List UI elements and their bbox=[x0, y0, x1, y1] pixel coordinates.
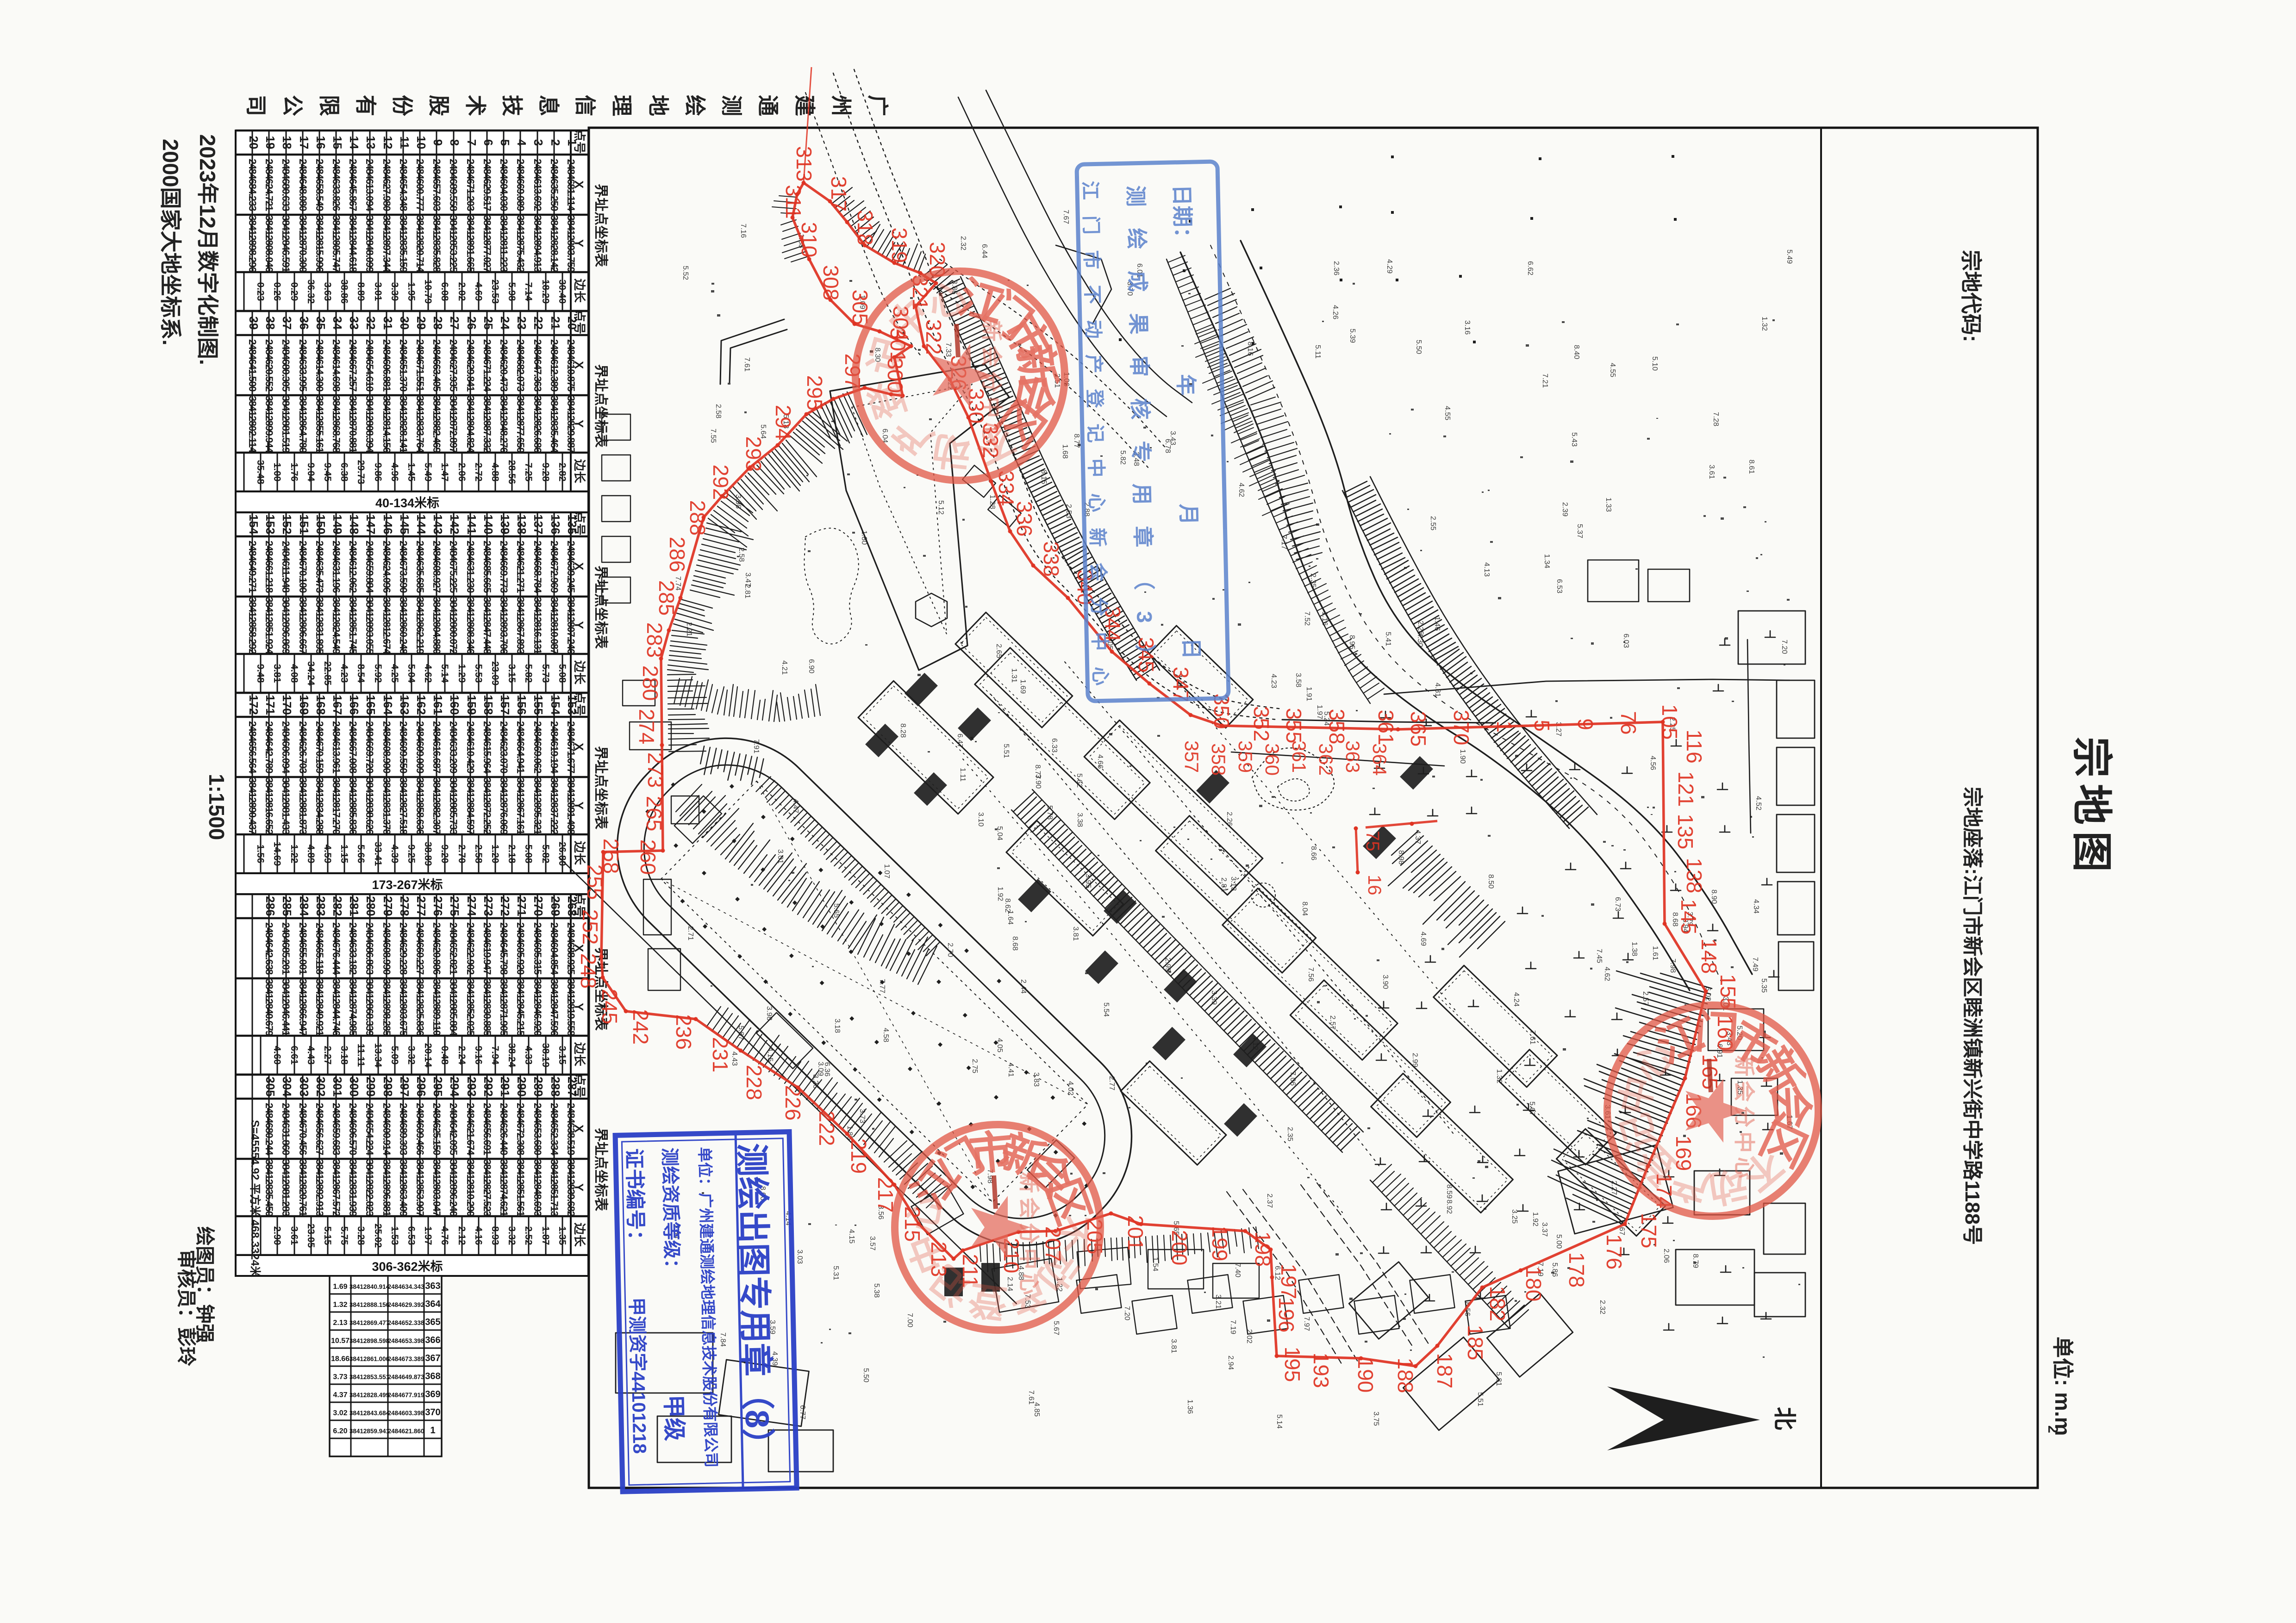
svg-text:1.46: 1.46 bbox=[1433, 616, 1441, 631]
svg-text:4.88: 4.88 bbox=[490, 463, 500, 482]
svg-text:38412829.887: 38412829.887 bbox=[565, 396, 577, 453]
svg-text:2484624.096: 2484624.096 bbox=[381, 541, 393, 593]
svg-text:心: 心 bbox=[980, 422, 1004, 443]
svg-text:279: 279 bbox=[381, 896, 395, 916]
svg-text:285: 285 bbox=[655, 580, 679, 616]
svg-text:2484629.392: 2484629.392 bbox=[388, 1301, 424, 1308]
svg-text:38412868.768: 38412868.768 bbox=[331, 396, 342, 453]
svg-text:38412814.156: 38412814.156 bbox=[381, 396, 393, 453]
svg-text:38412898.296: 38412898.296 bbox=[247, 215, 258, 273]
svg-text:8.79: 8.79 bbox=[1691, 1254, 1699, 1268]
svg-text:2484677.919: 2484677.919 bbox=[388, 1392, 424, 1399]
svg-text:4.02: 4.02 bbox=[1067, 1081, 1074, 1095]
svg-text:38412806.667: 38412806.667 bbox=[297, 597, 309, 654]
svg-text:2484657.603: 2484657.603 bbox=[431, 159, 443, 211]
svg-text:测: 测 bbox=[719, 95, 743, 116]
svg-text:2484656.564: 2484656.564 bbox=[247, 721, 258, 774]
svg-text:38412819.558: 38412819.558 bbox=[565, 979, 577, 1036]
svg-text:2484635.250: 2484635.250 bbox=[549, 159, 560, 211]
svg-text:5.39: 5.39 bbox=[1348, 329, 1356, 343]
svg-text:13.34: 13.34 bbox=[373, 1043, 383, 1068]
svg-text:172: 172 bbox=[247, 695, 261, 715]
svg-text:2484612.389: 2484612.389 bbox=[549, 339, 560, 392]
svg-text:2484645.867: 2484645.867 bbox=[347, 159, 359, 211]
svg-text:11.11: 11.11 bbox=[356, 1044, 366, 1067]
svg-text:7.06: 7.06 bbox=[1289, 1071, 1297, 1086]
svg-text:38412846.591: 38412846.591 bbox=[280, 215, 292, 273]
svg-text:6.38: 6.38 bbox=[339, 463, 349, 482]
svg-text:0.48: 0.48 bbox=[439, 1046, 450, 1065]
svg-text:38.89: 38.89 bbox=[423, 842, 433, 866]
svg-text:9: 9 bbox=[431, 139, 445, 146]
svg-text:2484653.398: 2484653.398 bbox=[388, 1337, 424, 1344]
svg-text:300: 300 bbox=[347, 1076, 361, 1096]
svg-text:2.99: 2.99 bbox=[1164, 958, 1172, 972]
svg-text:38412835.464: 38412835.464 bbox=[549, 396, 560, 454]
svg-text:1.56: 1.56 bbox=[255, 845, 266, 864]
svg-text:1.22: 1.22 bbox=[289, 845, 299, 864]
svg-text:2484669.720: 2484669.720 bbox=[364, 721, 375, 773]
svg-text:197: 197 bbox=[1277, 1264, 1301, 1300]
svg-text:180: 180 bbox=[1522, 1266, 1546, 1302]
svg-text:3.15: 3.15 bbox=[557, 1046, 568, 1065]
svg-text:5.50: 5.50 bbox=[862, 1368, 870, 1382]
svg-text:38412847.448: 38412847.448 bbox=[481, 597, 493, 654]
svg-text:5.31: 5.31 bbox=[832, 1266, 840, 1280]
svg-text:2484664.941: 2484664.941 bbox=[515, 721, 526, 773]
svg-text:4.12: 4.12 bbox=[1251, 1036, 1259, 1050]
svg-text:2484676.444: 2484676.444 bbox=[331, 922, 342, 975]
svg-text:38412828.499: 38412828.499 bbox=[349, 1392, 389, 1399]
svg-text:测绘出图专用章（8）: 测绘出图专用章（8） bbox=[732, 1143, 776, 1462]
svg-text:38412866.947: 38412866.947 bbox=[297, 979, 309, 1036]
svg-text:5: 5 bbox=[1530, 720, 1554, 732]
svg-text:38412870.881: 38412870.881 bbox=[347, 396, 359, 453]
svg-text:365: 365 bbox=[1406, 711, 1430, 747]
svg-text:术: 术 bbox=[463, 95, 487, 116]
svg-text:2484642.638: 2484642.638 bbox=[263, 922, 275, 975]
svg-text:8.54: 8.54 bbox=[356, 664, 366, 683]
svg-text:7.56: 7.56 bbox=[1307, 967, 1315, 982]
svg-text:5.78: 5.78 bbox=[1046, 805, 1054, 820]
svg-text:2484656.691: 2484656.691 bbox=[481, 1103, 493, 1155]
svg-text:280: 280 bbox=[364, 896, 378, 916]
svg-text:305: 305 bbox=[263, 1076, 277, 1096]
svg-text:边长: 边长 bbox=[573, 1223, 586, 1247]
svg-text:1.76: 1.76 bbox=[289, 463, 299, 482]
svg-text:7.94: 7.94 bbox=[490, 1046, 500, 1065]
svg-text:界址点坐标表: 界址点坐标表 bbox=[593, 1128, 608, 1211]
svg-text:2.18: 2.18 bbox=[506, 845, 517, 864]
svg-text:5.41: 5.41 bbox=[1384, 632, 1392, 646]
svg-text:21: 21 bbox=[549, 317, 562, 330]
svg-text:299: 299 bbox=[364, 1076, 378, 1096]
svg-text:2023年12月数字化制图.: 2023年12月数字化制图. bbox=[195, 134, 220, 365]
svg-text:1.00: 1.00 bbox=[272, 463, 282, 482]
svg-text:2.53: 2.53 bbox=[1065, 504, 1073, 518]
svg-text:137: 137 bbox=[531, 514, 545, 534]
svg-text:4.25: 4.25 bbox=[389, 664, 400, 683]
svg-text:4.23: 4.23 bbox=[1270, 674, 1278, 688]
svg-text:限: 限 bbox=[317, 95, 341, 116]
svg-text:0.23: 0.23 bbox=[255, 282, 266, 301]
svg-text:38412853.225: 38412853.225 bbox=[448, 215, 459, 273]
svg-text:160: 160 bbox=[448, 695, 462, 715]
svg-text:38412838.626: 38412838.626 bbox=[364, 777, 375, 835]
svg-text:2484629.228: 2484629.228 bbox=[398, 922, 409, 975]
svg-text:2484606.094: 2484606.094 bbox=[280, 721, 292, 774]
svg-text:边长: 边长 bbox=[573, 459, 586, 484]
svg-text:11: 11 bbox=[398, 136, 412, 149]
svg-text:4.41: 4.41 bbox=[1007, 1063, 1015, 1077]
svg-text:10.79: 10.79 bbox=[423, 280, 433, 304]
svg-text:38412877.027: 38412877.027 bbox=[481, 215, 493, 273]
svg-text:5: 5 bbox=[498, 139, 512, 146]
svg-text:38412831.939: 38412831.939 bbox=[347, 1159, 359, 1217]
svg-text:3.75: 3.75 bbox=[1372, 1412, 1380, 1426]
svg-text:2484685.201: 2484685.201 bbox=[280, 922, 292, 975]
svg-text:2484608.900: 2484608.900 bbox=[381, 721, 393, 773]
svg-text:9.04: 9.04 bbox=[306, 463, 316, 482]
svg-text:236: 236 bbox=[672, 1014, 696, 1050]
svg-text:188: 188 bbox=[1393, 1358, 1417, 1393]
svg-text:38412885.836: 38412885.836 bbox=[347, 777, 359, 835]
svg-text:2484654.610: 2484654.610 bbox=[364, 339, 375, 392]
svg-text:2484623.070: 2484623.070 bbox=[498, 721, 510, 773]
svg-text:13: 13 bbox=[364, 136, 378, 149]
svg-text:38412803.759: 38412803.759 bbox=[565, 215, 577, 273]
svg-text:1.35: 1.35 bbox=[557, 1226, 568, 1245]
svg-text:绘: 绘 bbox=[683, 95, 707, 116]
svg-text:3.61: 3.61 bbox=[1708, 465, 1716, 479]
svg-text:306-362米标: 306-362米标 bbox=[372, 1260, 443, 1274]
svg-text:6: 6 bbox=[481, 139, 495, 146]
svg-text:5.15: 5.15 bbox=[322, 1226, 333, 1245]
svg-text:2484647.363: 2484647.363 bbox=[532, 339, 543, 392]
svg-text:38412840.914: 38412840.914 bbox=[349, 1283, 390, 1290]
svg-text:170: 170 bbox=[280, 695, 294, 715]
svg-text:38412884.597: 38412884.597 bbox=[465, 777, 476, 835]
svg-text:23.09: 23.09 bbox=[490, 661, 500, 686]
svg-text:38412891.665: 38412891.665 bbox=[465, 215, 476, 273]
svg-text:3.98: 3.98 bbox=[765, 1006, 773, 1020]
svg-text:2484638.519: 2484638.519 bbox=[565, 1103, 577, 1155]
svg-text:4.43: 4.43 bbox=[306, 1046, 316, 1065]
svg-text:2484659.683: 2484659.683 bbox=[331, 1103, 342, 1155]
svg-text:新: 新 bbox=[980, 320, 1004, 342]
svg-text:6.62: 6.62 bbox=[1526, 261, 1534, 275]
svg-text:38412805.747: 38412805.747 bbox=[331, 215, 342, 273]
svg-text:258: 258 bbox=[599, 839, 623, 874]
svg-text:2.39: 2.39 bbox=[1561, 502, 1569, 516]
svg-text:4.60: 4.60 bbox=[272, 1046, 282, 1065]
svg-text:31: 31 bbox=[381, 317, 395, 330]
svg-text:26: 26 bbox=[465, 317, 479, 330]
svg-text:157: 157 bbox=[498, 695, 512, 715]
svg-text:4.89: 4.89 bbox=[306, 845, 316, 864]
svg-text:5.04: 5.04 bbox=[996, 826, 1004, 840]
svg-text:20: 20 bbox=[247, 136, 261, 149]
svg-text:4.96: 4.96 bbox=[389, 463, 400, 482]
svg-text:2484665.118: 2484665.118 bbox=[314, 923, 325, 975]
svg-text:2484634.343: 2484634.343 bbox=[388, 1283, 424, 1290]
svg-text:158: 158 bbox=[481, 695, 495, 715]
svg-text:2000国家大地坐标系.: 2000国家大地坐标系. bbox=[158, 139, 183, 346]
svg-text:9.28: 9.28 bbox=[540, 463, 551, 482]
svg-text:33: 33 bbox=[347, 317, 361, 330]
svg-text:2484645.798: 2484645.798 bbox=[498, 922, 510, 975]
svg-text:358: 358 bbox=[1325, 709, 1349, 745]
svg-text:2.06: 2.06 bbox=[1662, 1249, 1670, 1263]
svg-text:38412834.288: 38412834.288 bbox=[314, 777, 325, 835]
svg-text:5.67: 5.67 bbox=[1052, 1321, 1060, 1335]
svg-text:新: 新 bbox=[1732, 1055, 1756, 1076]
svg-text:281: 281 bbox=[347, 896, 361, 916]
svg-text:286: 286 bbox=[263, 896, 277, 916]
svg-text:2484681.114: 2484681.114 bbox=[565, 159, 577, 211]
svg-text:2484633.182: 2484633.182 bbox=[347, 922, 359, 975]
svg-text:3.32: 3.32 bbox=[506, 1226, 517, 1245]
svg-text:38412826.686: 38412826.686 bbox=[532, 396, 543, 453]
svg-text:38412845.215: 38412845.215 bbox=[515, 979, 526, 1036]
svg-text:3.16: 3.16 bbox=[1463, 320, 1471, 335]
svg-text:274: 274 bbox=[635, 709, 659, 745]
svg-text:121: 121 bbox=[1674, 771, 1698, 807]
svg-text:288: 288 bbox=[686, 500, 710, 536]
svg-text:2484631.230: 2484631.230 bbox=[465, 541, 476, 593]
svg-text:州: 州 bbox=[829, 95, 853, 116]
svg-text:4.16: 4.16 bbox=[473, 1226, 484, 1245]
svg-text:2484629.517: 2484629.517 bbox=[481, 159, 493, 211]
svg-text:5.08: 5.08 bbox=[523, 845, 534, 864]
svg-text:1.97: 1.97 bbox=[423, 1226, 433, 1245]
svg-text:边长: 边长 bbox=[573, 841, 586, 865]
svg-text:2.13: 2.13 bbox=[333, 1319, 347, 1327]
svg-text:38: 38 bbox=[263, 317, 277, 330]
svg-text:38412811.223: 38412811.223 bbox=[498, 215, 510, 272]
svg-text:4.15: 4.15 bbox=[848, 1229, 855, 1244]
svg-text:7.21: 7.21 bbox=[1541, 373, 1549, 388]
svg-text:22.85: 22.85 bbox=[322, 661, 333, 686]
svg-text:9.16: 9.16 bbox=[473, 1046, 484, 1065]
svg-text:38412852.025: 38412852.025 bbox=[465, 979, 476, 1036]
svg-text:1.69: 1.69 bbox=[1019, 679, 1027, 694]
svg-text:9.25: 9.25 bbox=[406, 845, 417, 864]
svg-text:317: 317 bbox=[827, 176, 851, 212]
svg-text:34.24: 34.24 bbox=[306, 661, 316, 686]
svg-text:75: 75 bbox=[1362, 831, 1383, 852]
svg-text:8.50: 8.50 bbox=[1487, 874, 1495, 889]
svg-text:149: 149 bbox=[331, 514, 344, 534]
svg-text:38412851.924: 38412851.924 bbox=[263, 597, 275, 655]
svg-text:171: 171 bbox=[263, 695, 277, 715]
svg-text:4.21: 4.21 bbox=[780, 660, 788, 675]
svg-text:5.86: 5.86 bbox=[1551, 1262, 1559, 1277]
svg-text:38412897.344: 38412897.344 bbox=[381, 215, 393, 273]
svg-text:292: 292 bbox=[481, 1076, 495, 1096]
svg-text:5.11: 5.11 bbox=[1314, 345, 1322, 359]
svg-text:测绘资质等级：: 测绘资质等级： bbox=[659, 1147, 682, 1277]
svg-text:338: 338 bbox=[1039, 541, 1063, 577]
svg-text:153: 153 bbox=[565, 695, 579, 715]
svg-text:38412816.652: 38412816.652 bbox=[263, 777, 275, 835]
svg-text:289: 289 bbox=[531, 1076, 545, 1096]
svg-text:35: 35 bbox=[314, 317, 328, 330]
svg-text:76: 76 bbox=[1616, 711, 1641, 734]
svg-text:357: 357 bbox=[1181, 740, 1203, 773]
svg-text:4.26: 4.26 bbox=[1331, 305, 1339, 319]
svg-text:38412853.551: 38412853.551 bbox=[349, 1374, 390, 1380]
svg-text:2484649.271: 2484649.271 bbox=[247, 541, 258, 593]
svg-text:8.68: 8.68 bbox=[1011, 936, 1019, 951]
svg-text:38412898.285: 38412898.285 bbox=[381, 979, 393, 1036]
svg-text:2484619.194: 2484619.194 bbox=[549, 721, 560, 774]
svg-text:心: 心 bbox=[1017, 1274, 1041, 1295]
svg-text:3.18: 3.18 bbox=[833, 1019, 841, 1033]
svg-text:7.16: 7.16 bbox=[739, 224, 747, 238]
svg-text:2484686.863: 2484686.863 bbox=[364, 922, 375, 975]
svg-text:140: 140 bbox=[481, 514, 495, 534]
svg-text:2484635.473: 2484635.473 bbox=[314, 541, 325, 593]
svg-text:1.45: 1.45 bbox=[406, 463, 417, 482]
svg-text:4.66: 4.66 bbox=[1096, 754, 1104, 769]
svg-text:4.29: 4.29 bbox=[1385, 259, 1393, 274]
svg-text:8.95: 8.95 bbox=[1348, 635, 1356, 649]
svg-text:4.23: 4.23 bbox=[339, 664, 349, 683]
svg-text:2484620.473: 2484620.473 bbox=[498, 339, 510, 392]
svg-text:38412847.596: 38412847.596 bbox=[549, 979, 560, 1036]
svg-text:138: 138 bbox=[1682, 858, 1706, 894]
svg-text:295: 295 bbox=[431, 1076, 445, 1096]
svg-text:38412828.142: 38412828.142 bbox=[549, 215, 560, 273]
svg-text:38412893.055: 38412893.055 bbox=[364, 597, 375, 654]
svg-text:2484658.549: 2484658.549 bbox=[314, 159, 325, 211]
svg-text:319: 319 bbox=[887, 228, 911, 263]
svg-text:136: 136 bbox=[549, 514, 562, 534]
svg-text:5.38: 5.38 bbox=[873, 1283, 880, 1298]
svg-text:3.58: 3.58 bbox=[1294, 673, 1302, 687]
svg-text:199: 199 bbox=[1208, 1226, 1232, 1262]
svg-text:290: 290 bbox=[515, 1076, 529, 1096]
svg-text:155: 155 bbox=[531, 695, 545, 715]
svg-text:38412885.884: 38412885.884 bbox=[448, 979, 459, 1037]
svg-text:4.62: 4.62 bbox=[423, 664, 433, 683]
svg-text:193: 193 bbox=[1309, 1353, 1333, 1388]
svg-text:38412820.761: 38412820.761 bbox=[297, 1159, 309, 1217]
svg-text:269: 269 bbox=[549, 896, 562, 916]
svg-text:6.73: 6.73 bbox=[1614, 897, 1622, 911]
svg-text:38412895.321: 38412895.321 bbox=[532, 777, 543, 835]
svg-text:245: 245 bbox=[598, 989, 622, 1025]
svg-text:地: 地 bbox=[646, 95, 670, 116]
svg-text:38412815.996: 38412815.996 bbox=[314, 215, 325, 273]
svg-text:2.71: 2.71 bbox=[686, 926, 694, 940]
svg-text:38412851.713: 38412851.713 bbox=[549, 1159, 560, 1217]
svg-text:4.34: 4.34 bbox=[1752, 899, 1760, 914]
svg-text:2484667.257: 2484667.257 bbox=[347, 339, 359, 392]
svg-text:4.62: 4.62 bbox=[1237, 483, 1245, 497]
svg-text:226: 226 bbox=[781, 1085, 805, 1121]
svg-text:7.17: 7.17 bbox=[1280, 535, 1288, 549]
svg-text:38412887.332: 38412887.332 bbox=[481, 396, 493, 453]
svg-text:38412889.110: 38412889.110 bbox=[431, 979, 443, 1036]
svg-text:5.49: 5.49 bbox=[423, 463, 433, 482]
svg-text:38412807.246: 38412807.246 bbox=[565, 597, 577, 654]
svg-text:277: 277 bbox=[414, 896, 428, 916]
svg-text:2484611.948: 2484611.948 bbox=[280, 541, 292, 593]
svg-text:宗地代码:: 宗地代码: bbox=[1959, 250, 1983, 342]
svg-text:38412899.944: 38412899.944 bbox=[263, 396, 275, 454]
svg-text:38412891.498: 38412891.498 bbox=[565, 777, 577, 835]
svg-text:38412810.290: 38412810.290 bbox=[465, 1159, 476, 1217]
svg-text:3.81: 3.81 bbox=[1072, 927, 1079, 941]
svg-text:294: 294 bbox=[771, 405, 795, 441]
svg-text:301: 301 bbox=[331, 1076, 344, 1096]
svg-text:2484620.552: 2484620.552 bbox=[263, 339, 275, 392]
svg-text:146: 146 bbox=[381, 514, 395, 534]
svg-text:2484682.073: 2484682.073 bbox=[515, 339, 526, 392]
svg-text:2.32: 2.32 bbox=[959, 236, 967, 250]
svg-text:18.66: 18.66 bbox=[331, 1355, 349, 1363]
svg-text:273: 273 bbox=[481, 896, 495, 916]
svg-text:3.25: 3.25 bbox=[1510, 1209, 1518, 1224]
svg-text:2484672.308: 2484672.308 bbox=[515, 1103, 526, 1155]
svg-text:15: 15 bbox=[331, 136, 344, 149]
svg-text:35.48: 35.48 bbox=[255, 460, 266, 485]
svg-text:分: 分 bbox=[1732, 1106, 1756, 1127]
svg-text:139: 139 bbox=[498, 514, 512, 534]
svg-text:1:1500: 1:1500 bbox=[205, 774, 229, 840]
svg-text:282: 282 bbox=[331, 896, 344, 916]
svg-text:38412874.985: 38412874.985 bbox=[347, 979, 359, 1036]
svg-text:2.24: 2.24 bbox=[456, 1046, 467, 1065]
svg-text:38412835.450: 38412835.450 bbox=[263, 1159, 275, 1217]
svg-text:38412881.873: 38412881.873 bbox=[297, 777, 309, 835]
svg-text:30.40: 30.40 bbox=[557, 280, 568, 304]
svg-text:2.26: 2.26 bbox=[1225, 812, 1233, 826]
svg-text:3: 3 bbox=[531, 139, 545, 146]
svg-text:38412833.764: 38412833.764 bbox=[414, 396, 426, 454]
svg-text:38.19: 38.19 bbox=[540, 1043, 551, 1068]
svg-text:5.35: 5.35 bbox=[1760, 978, 1768, 993]
svg-text:2484680.305: 2484680.305 bbox=[280, 339, 292, 392]
svg-text:367: 367 bbox=[425, 1353, 440, 1363]
svg-text:219: 219 bbox=[847, 1138, 871, 1174]
svg-text:38412896.240: 38412896.240 bbox=[448, 1159, 459, 1217]
svg-text:38412892.913: 38412892.913 bbox=[314, 1159, 325, 1217]
svg-text:4.62: 4.62 bbox=[1603, 967, 1611, 981]
svg-text:中: 中 bbox=[1017, 1248, 1041, 1269]
svg-text:2.94: 2.94 bbox=[1227, 1356, 1235, 1370]
svg-text:27: 27 bbox=[448, 317, 462, 330]
svg-text:会: 会 bbox=[980, 346, 1004, 367]
svg-text:2.75: 2.75 bbox=[971, 1059, 979, 1073]
svg-text:231: 231 bbox=[708, 1037, 732, 1073]
svg-text:3.90: 3.90 bbox=[1381, 975, 1389, 989]
svg-text:182: 182 bbox=[1485, 1286, 1510, 1322]
svg-text:38412835.828: 38412835.828 bbox=[431, 215, 443, 273]
svg-text:2484656.627: 2484656.627 bbox=[314, 1103, 325, 1155]
svg-text:7.19: 7.19 bbox=[1229, 1320, 1237, 1334]
svg-text:5.43: 5.43 bbox=[1570, 432, 1578, 447]
svg-text:2484605.920: 2484605.920 bbox=[515, 922, 526, 975]
svg-text:198: 198 bbox=[1251, 1231, 1275, 1267]
svg-text:2484620.806: 2484620.806 bbox=[431, 922, 443, 975]
svg-text:271: 271 bbox=[515, 896, 529, 916]
svg-text:7.97: 7.97 bbox=[1303, 1317, 1310, 1331]
svg-text:4.69: 4.69 bbox=[1419, 932, 1427, 946]
svg-text:1.20: 1.20 bbox=[490, 845, 500, 864]
